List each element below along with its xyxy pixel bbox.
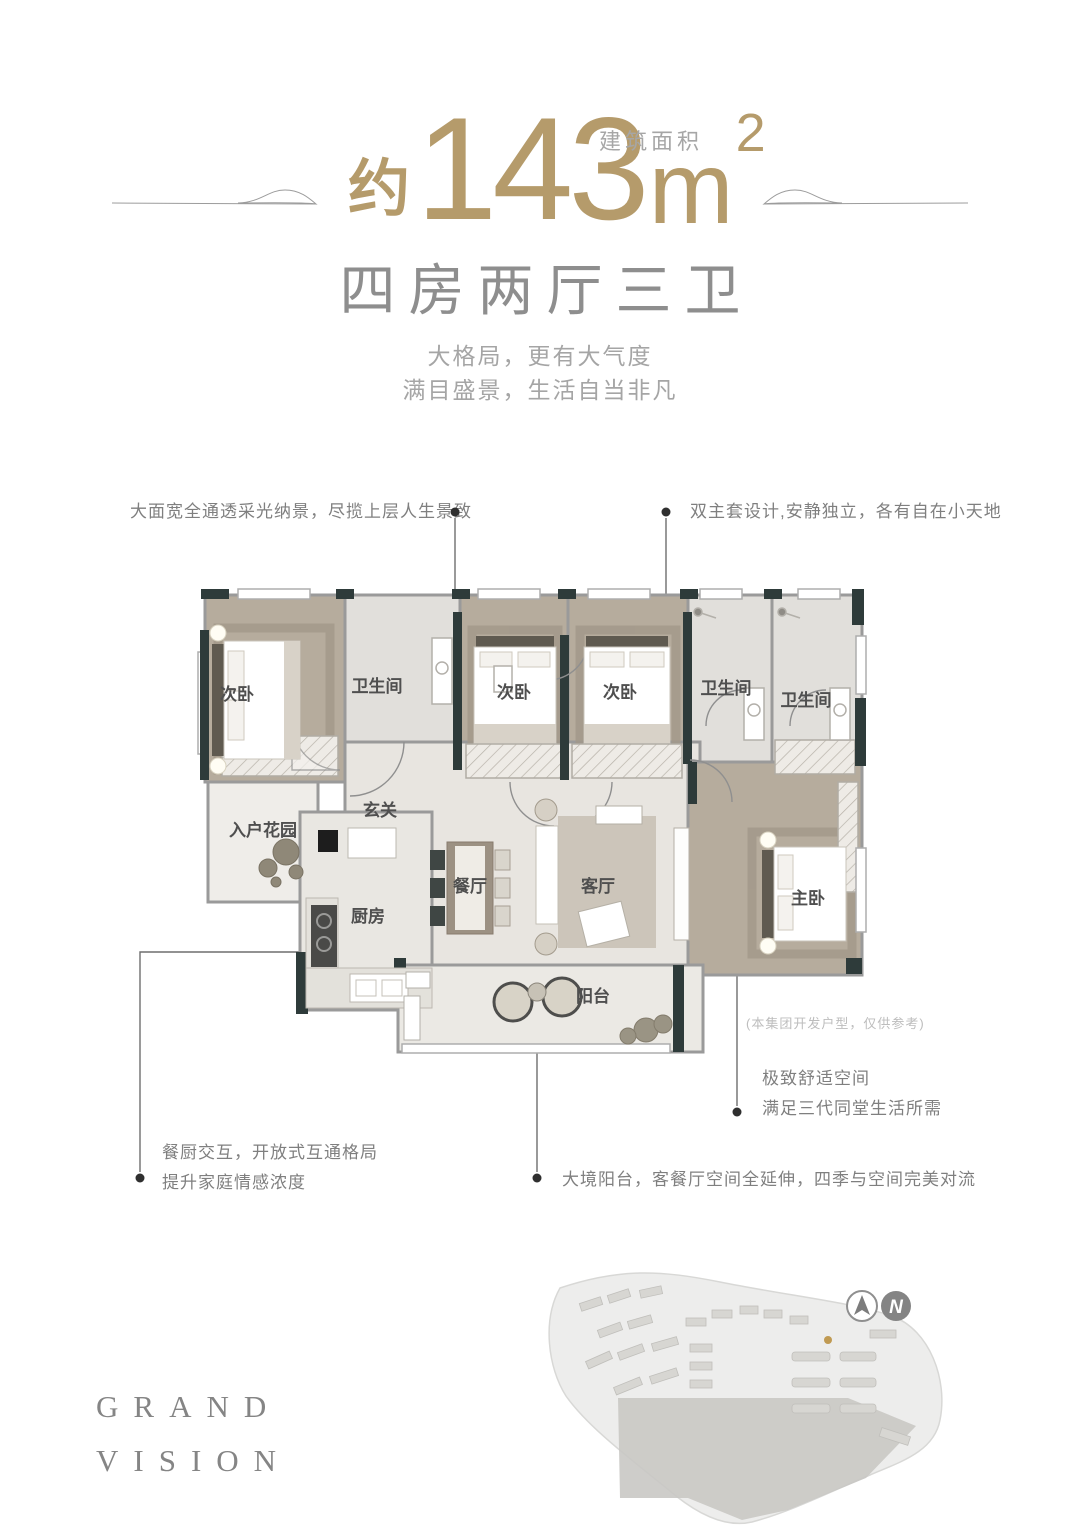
label-entry-garden: 入户花园 bbox=[229, 820, 297, 840]
label-foyer: 玄关 bbox=[363, 800, 397, 820]
label-kitchen: 厨房 bbox=[351, 906, 385, 926]
label-bath-left: 卫生间 bbox=[352, 676, 403, 696]
label-bedroom-mid: 次卧 bbox=[497, 682, 531, 702]
label-living: 客厅 bbox=[580, 876, 615, 896]
brand-logo: GRAND VISION bbox=[96, 1380, 291, 1488]
project-location-dot bbox=[824, 1336, 832, 1344]
label-bedroom-right: 次卧 bbox=[603, 682, 637, 702]
floorplan-poster: 约143m2 建筑面积 四房两厅三卫 大格局，更有大气度 满目盛景，生活自当非凡… bbox=[0, 0, 1080, 1531]
compass-n-label: N bbox=[889, 1297, 904, 1318]
floor-plan: 次卧 卫生间 次卧 次卧 卫生间 卫生间 玄关 入户花园 厨房 餐厅 客厅 主卧… bbox=[0, 0, 1080, 1531]
label-master: 主卧 bbox=[791, 888, 825, 908]
label-dining: 餐厅 bbox=[453, 876, 487, 896]
label-bath-right: 卫生间 bbox=[781, 690, 832, 710]
brand-line2: VISION bbox=[96, 1434, 291, 1488]
brand-line1: GRAND bbox=[96, 1380, 291, 1434]
label-balcony: 阳台 bbox=[576, 986, 610, 1006]
label-bath-mid: 卫生间 bbox=[701, 678, 752, 698]
label-bedroom-left: 次卧 bbox=[220, 684, 254, 704]
